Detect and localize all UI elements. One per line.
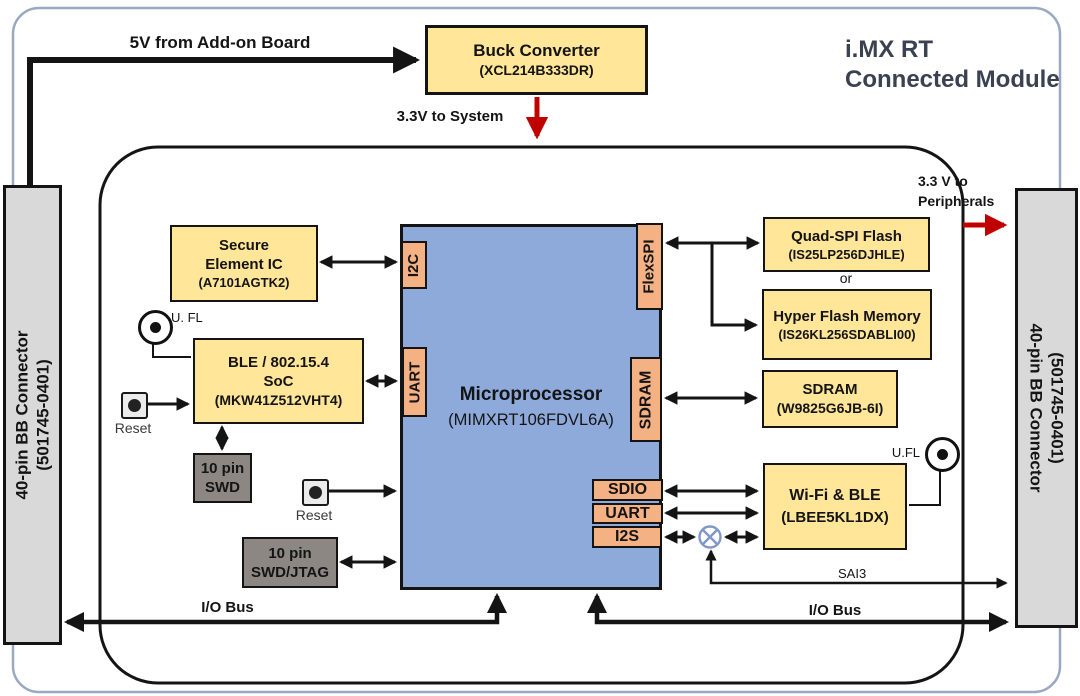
reset-mcu-label: Reset (289, 507, 339, 523)
port-flexspi-label: FlexSPI (641, 239, 658, 293)
ufl-ble-label: U. FL (171, 310, 203, 325)
ble-soc-line2: SoC (264, 372, 294, 391)
microprocessor-name: Microprocessor (460, 382, 603, 408)
33v-to-system-label: 3.3V to System (375, 108, 525, 125)
ufl-connector-wifi-icon (925, 437, 960, 472)
port-sdram-label: SDRAM (637, 370, 655, 429)
swd-jtag-line2: SWD/JTAG (251, 563, 329, 582)
sdram-chip-part: (W9825G6JB-6I) (777, 399, 884, 418)
swd-line1: 10 pin (201, 459, 244, 478)
port-i2c: I2C (401, 241, 427, 289)
secure-element-line2: Element IC (205, 255, 283, 274)
port-sdram: SDRAM (630, 357, 662, 442)
right-connector-part: (501745-0401) (1047, 352, 1068, 464)
reset-ble-dot (128, 399, 141, 412)
secure-element-block: Secure Element IC (A7101AGTK2) (170, 225, 318, 302)
buck-converter-name: Buck Converter (473, 40, 600, 61)
wifi-ble-block: Wi-Fi & BLE (LBEE5KL1DX) (763, 463, 907, 550)
hyper-flash-part: (IS26KL256SDABLI00) (778, 326, 915, 343)
ufl-ble-center-dot (150, 322, 161, 333)
right-bb-connector: (501745-0401) 40-pin BB Connector (1015, 188, 1078, 628)
line-5v-input (30, 60, 416, 185)
hyper-flash-name: Hyper Flash Memory (773, 307, 921, 326)
port-uart-wifi: UART (592, 503, 663, 524)
port-i2c-label: I2C (406, 253, 423, 276)
line-ufl-wifi (909, 467, 940, 505)
port-uart-ble: UART (402, 347, 427, 417)
io-bus-right-label: I/O Bus (790, 602, 880, 619)
buck-converter-block: Buck Converter (XCL214B333DR) (425, 25, 648, 95)
port-uart-ble-label: UART (406, 361, 423, 403)
left-connector-part: (501745-0401) (33, 359, 54, 471)
diagram-title: i.MX RT Connected Module (845, 35, 1060, 95)
hyper-flash-block: Hyper Flash Memory (IS26KL256SDABLI00) (762, 289, 932, 360)
33v-to-peripherals-label: 3.3 V to Peripherals (918, 171, 994, 211)
reset-mcu-dot (309, 486, 322, 499)
33v-to-peripherals-line1: 3.3 V to (918, 171, 994, 191)
ble-soc-part: (MKW41Z512VHT4) (215, 391, 343, 409)
sdram-chip-name: SDRAM (803, 380, 858, 399)
audio-mux-icon (700, 527, 721, 548)
swd-header-block: 10 pin SWD (193, 453, 252, 503)
reset-button-ble-icon (121, 392, 148, 419)
5v-input-label: 5V from Add-on Board (110, 33, 330, 53)
port-sdio: SDIO (592, 479, 663, 501)
port-sdio-label: SDIO (608, 481, 647, 499)
quad-spi-flash-block: Quad-SPI Flash (IS25LP256DJHLE) (763, 217, 930, 272)
wifi-ble-name: Wi-Fi & BLE (789, 485, 880, 507)
right-connector-name: 40-pin BB Connector (1026, 323, 1047, 492)
reset-ble-label: Reset (108, 420, 158, 436)
port-i2s-label: I2S (615, 528, 639, 546)
left-bb-connector: 40-pin BB Connector (501745-0401) (3, 185, 62, 645)
port-uart-wifi-label: UART (605, 505, 649, 523)
secure-element-line1: Secure (219, 236, 269, 255)
buck-converter-part: (XCL214B333DR) (479, 61, 593, 80)
imx-rt-module-diagram: 40-pin BB Connector (501745-0401) (50174… (0, 0, 1080, 696)
line-flexspi-hyperflash (712, 243, 756, 325)
ufl-connector-ble-icon (138, 310, 173, 345)
port-i2s: I2S (592, 526, 662, 548)
sai3-bus-label: SAI3 (838, 566, 866, 581)
port-flexspi: FlexSPI (636, 223, 663, 310)
ble-soc-block: BLE / 802.15.4 SoC (MKW41Z512VHT4) (193, 338, 364, 424)
quad-spi-part: (IS25LP256DJHLE) (788, 246, 904, 263)
secure-element-part: (A7101AGTK2) (198, 274, 289, 291)
left-connector-name: 40-pin BB Connector (12, 330, 33, 499)
swd-line2: SWD (205, 478, 240, 497)
33v-to-peripherals-line2: Peripherals (918, 191, 994, 211)
reset-button-mcu-icon (302, 479, 329, 506)
title-line1: i.MX RT (845, 35, 1060, 65)
ufl-wifi-center-dot (937, 449, 948, 460)
sdram-chip-block: SDRAM (W9825G6JB-6I) (762, 370, 898, 428)
ble-soc-line1: BLE / 802.15.4 (228, 353, 329, 372)
io-bus-left-label: I/O Bus (185, 599, 270, 616)
ufl-wifi-label: U.FL (874, 445, 920, 460)
swd-jtag-line1: 10 pin (268, 544, 311, 563)
microprocessor-part: (MIMXRT106FDVL6A) (448, 408, 614, 432)
title-line2: Connected Module (845, 65, 1060, 95)
line-io-bus-left (67, 596, 497, 622)
swd-jtag-header-block: 10 pin SWD/JTAG (242, 537, 338, 588)
quad-spi-name: Quad-SPI Flash (791, 227, 902, 246)
wifi-ble-part: (LBEE5KL1DX) (781, 507, 889, 528)
flash-or-label: or (831, 270, 861, 286)
